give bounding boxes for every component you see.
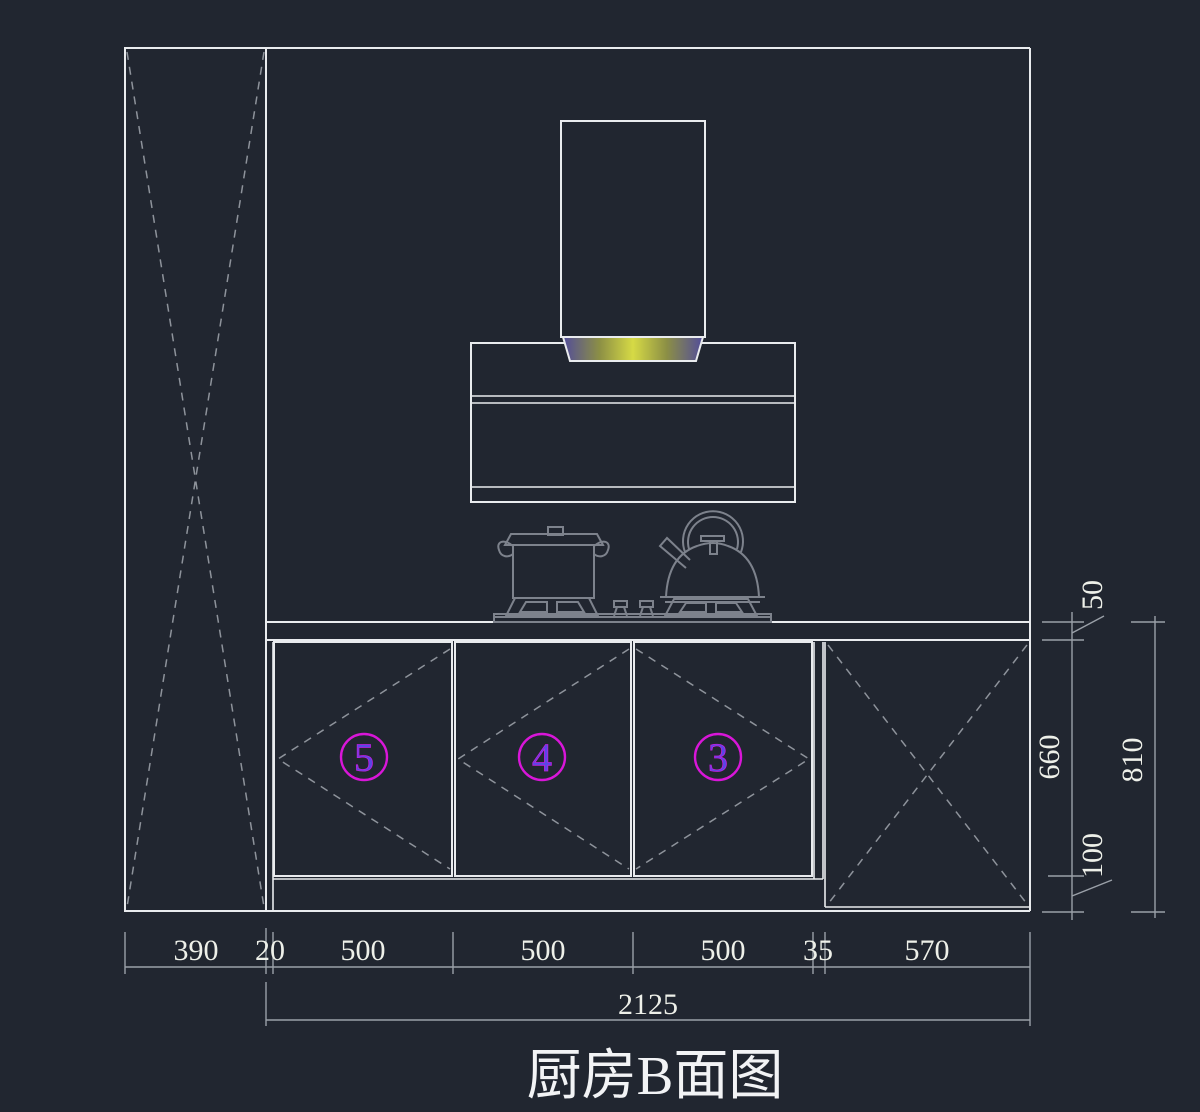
door-tag-number-5: 5 [354, 735, 374, 780]
dim-570: 570 [905, 934, 950, 967]
stock-pot [498, 527, 608, 598]
dim-2125: 2125 [618, 988, 678, 1021]
dim-500-a: 500 [341, 934, 386, 967]
base-cabinets [273, 642, 1030, 911]
pot-body [513, 545, 594, 598]
wall-cabinet-outline [471, 343, 795, 502]
cad-viewport: 5 4 3 390 20 500 500 500 35 570 2125 50 … [0, 0, 1200, 1112]
dim-500-b: 500 [521, 934, 566, 967]
drawing-title: 厨房B面图 [527, 1045, 784, 1106]
hood-chimney [561, 121, 705, 337]
right-grate-foot-1 [680, 603, 706, 612]
dim-100: 100 [1076, 833, 1109, 878]
dim-50: 50 [1076, 580, 1109, 610]
dim-50-leader [1072, 616, 1104, 633]
door-tag-number-3: 3 [708, 735, 728, 780]
knob-2-cap [640, 601, 653, 607]
dim-20: 20 [255, 934, 285, 967]
kettle-handle-inner [688, 517, 738, 549]
countertop [266, 622, 1030, 640]
left-grate-foot-1 [520, 602, 547, 612]
wall-outline [125, 48, 1030, 911]
dim-500-c: 500 [701, 934, 746, 967]
kettle [660, 511, 765, 602]
bottom-dimension-chain: 390 20 500 500 500 35 570 2125 [125, 928, 1030, 1026]
right-grate-foot-2 [716, 603, 742, 612]
dim-35: 35 [803, 934, 833, 967]
door-tag-number-4: 4 [532, 735, 552, 780]
right-end-panel-x-dash [828, 645, 1027, 904]
dim-660: 660 [1033, 735, 1066, 780]
tall-cabinet [125, 48, 266, 911]
dim-100-leader [1072, 880, 1112, 896]
door-tags: 5 4 3 [341, 734, 741, 780]
tall-cabinet-outline [125, 48, 266, 911]
hood-glow-panel [563, 337, 703, 361]
dim-810: 810 [1116, 738, 1149, 783]
cooktop-scene [494, 511, 771, 622]
right-dimension-chain: 50 660 100 810 [1033, 580, 1165, 920]
range-hood [561, 121, 705, 361]
kitchen-elevation-b-drawing: 5 4 3 390 20 500 500 500 35 570 2125 50 … [0, 0, 1200, 1112]
wall-cabinet [471, 343, 795, 502]
left-grate-foot-2 [557, 602, 584, 612]
dim-390: 390 [174, 934, 219, 967]
knob-1-cap [614, 601, 627, 607]
